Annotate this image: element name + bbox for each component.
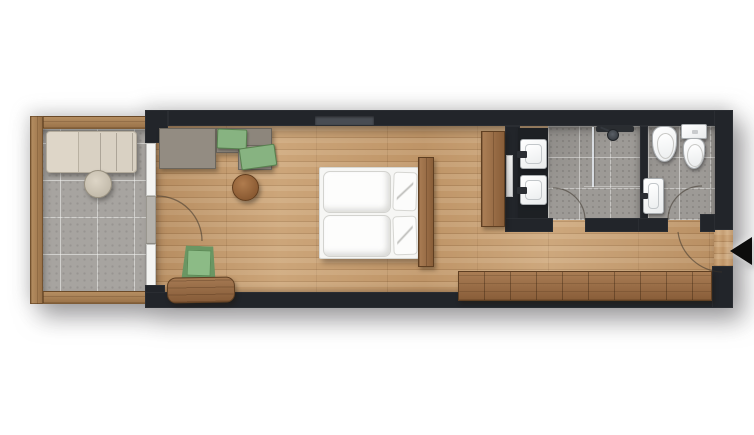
entry-door-arc xyxy=(678,232,722,272)
bathroom-door-arc xyxy=(553,188,585,220)
balcony-door-arc xyxy=(157,196,202,241)
door-swing-arcs xyxy=(0,0,754,435)
wc-door-arc xyxy=(668,186,702,220)
floor-plan xyxy=(0,0,754,435)
building-structure xyxy=(0,0,754,435)
entrance-arrow-icon xyxy=(730,237,752,265)
